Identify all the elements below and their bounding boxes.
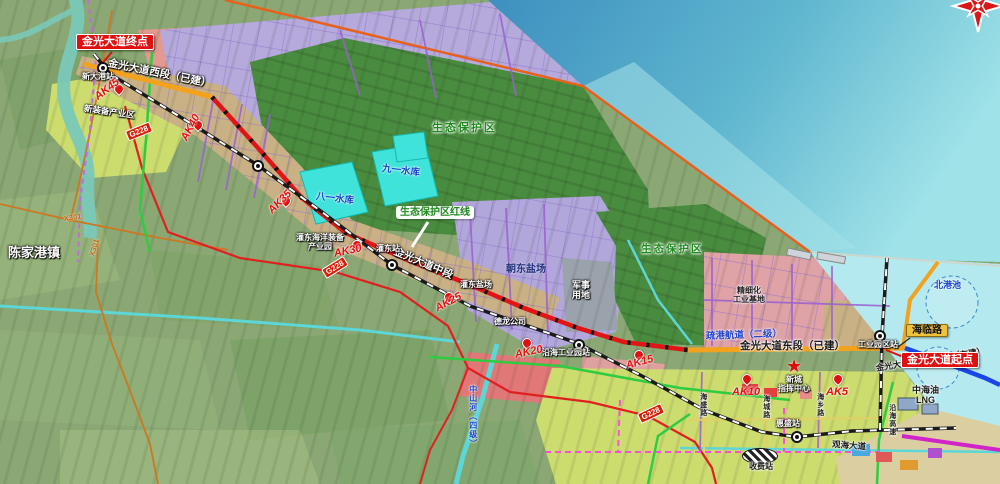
military-land-label: 军事 用地	[572, 281, 590, 301]
jinguang-end-label: 金光大道终点	[76, 34, 154, 50]
north-basin-label: 北港池	[934, 281, 961, 291]
road-east-label: 金光大道东段（已建）	[740, 341, 845, 353]
station-yanhai-label: 沿海工业园站	[542, 349, 590, 358]
delong-company-label: 德龙公司	[494, 318, 526, 327]
station-guandong-label: 灌东站	[376, 245, 400, 254]
fine-chemical-base-label: 精细化 工业基地	[733, 287, 765, 305]
eco-zone-label: 生态保护区	[641, 244, 704, 256]
yanhai-expressway-label: 沿海高速	[888, 404, 896, 436]
eco-zone-label: 生态保护区	[432, 122, 497, 134]
station-icon	[386, 259, 398, 271]
haicheng-road-label: 海城路	[762, 395, 770, 419]
zhongshan-canal-label: 中山河（四级）	[468, 385, 477, 448]
chaodong-saltfield-label: 朝东盐场	[506, 264, 546, 275]
jinguang-start-label: 金光大道起点	[901, 352, 979, 368]
command-center-star-icon: ★	[786, 357, 802, 375]
planning-map-canvas[interactable]: 金光大道终点 金光大道西段（已建） 新大港站 AK45 AK40 AK35 AK…	[0, 0, 1000, 484]
new-city-command-center-label: 新城 指挥中心	[778, 376, 810, 394]
ak10-label: AK10	[732, 386, 760, 398]
hailin-road-label: 海临路	[906, 324, 948, 337]
zone-guandong-equipment-label: 灌东海洋装备 产业园	[296, 234, 344, 252]
station-icon	[791, 431, 803, 443]
station-icon	[252, 160, 264, 172]
toll-station-label: 收费站	[749, 463, 773, 472]
haisheng-road-label: 海盛路	[699, 393, 707, 417]
eco-redline-label: 生态保护区红线	[396, 206, 474, 219]
station-gongyeyuan-label: 工业园区站	[858, 341, 898, 350]
haixiang-road-label: 海乡路	[816, 393, 824, 417]
guandong-saltfield-label: 灌东盐场	[460, 281, 492, 290]
chenjiagang-town-label: 陈家港镇	[8, 246, 60, 260]
cnooc-lng-label: 中海油 LNG	[912, 386, 939, 406]
station-huisheng-label: 惠盛站	[776, 420, 800, 429]
ak5-label: AK5	[826, 386, 848, 398]
